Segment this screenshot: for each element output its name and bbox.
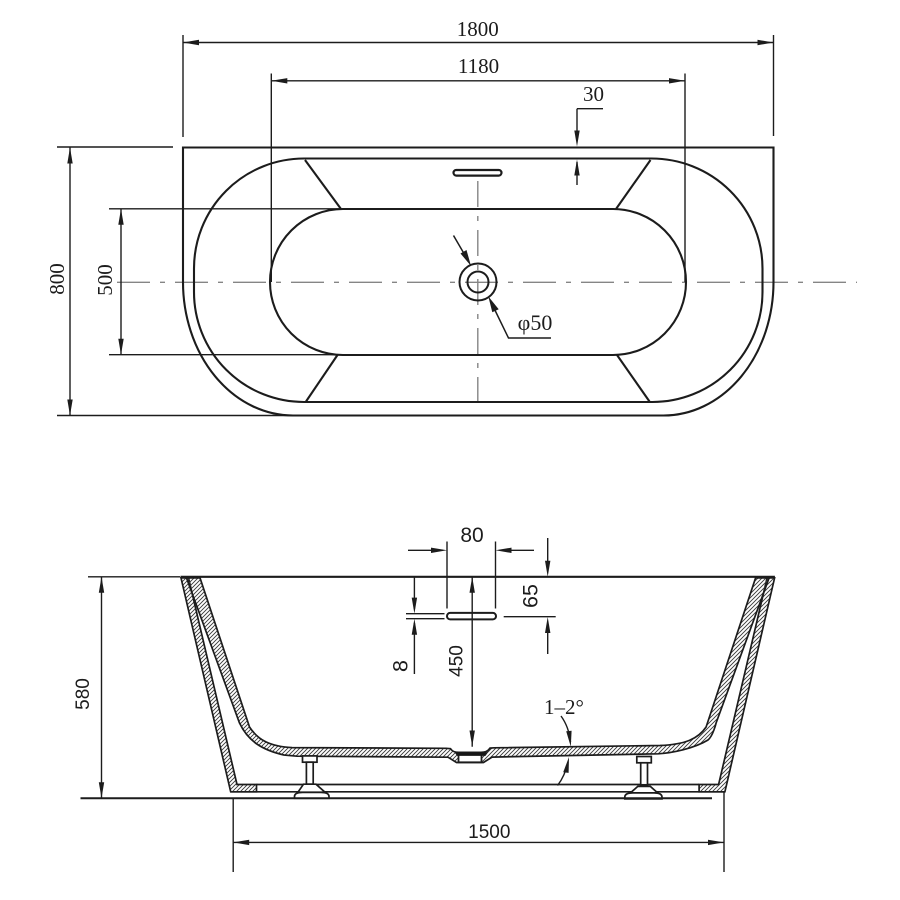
svg-text:8: 8 <box>389 660 413 672</box>
svg-text:φ50: φ50 <box>518 310 553 335</box>
svg-text:580: 580 <box>73 678 94 710</box>
svg-text:800: 800 <box>45 263 69 295</box>
svg-text:450: 450 <box>447 645 468 677</box>
svg-text:500: 500 <box>93 264 117 296</box>
svg-text:1800: 1800 <box>457 17 499 41</box>
svg-text:80: 80 <box>460 524 483 547</box>
svg-text:1180: 1180 <box>458 54 499 78</box>
svg-text:30: 30 <box>583 82 604 106</box>
svg-text:1500: 1500 <box>468 822 510 843</box>
svg-text:65: 65 <box>519 584 543 608</box>
svg-text:1–2°: 1–2° <box>544 695 584 719</box>
